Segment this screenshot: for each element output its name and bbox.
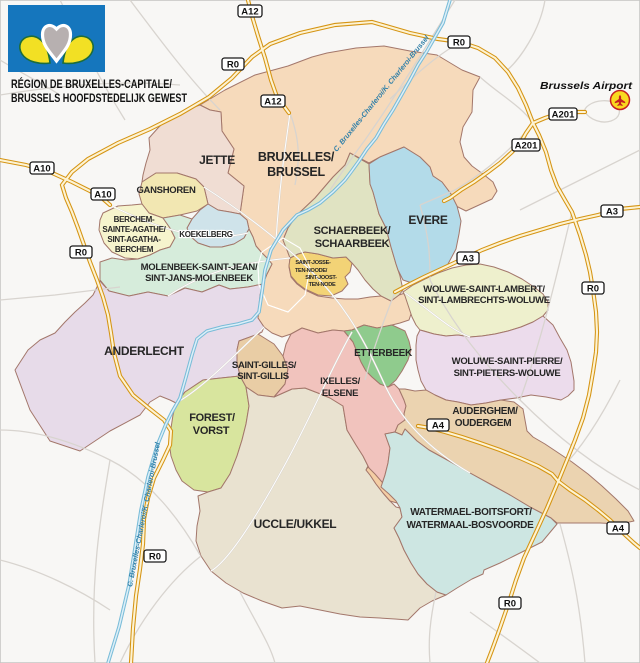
svg-text:SCHAERBEEK/: SCHAERBEEK/ bbox=[314, 225, 391, 237]
svg-text:AUDERGHEM/: AUDERGHEM/ bbox=[452, 406, 518, 417]
svg-text:MOLENBEEK-SAINT-JEAN/: MOLENBEEK-SAINT-JEAN/ bbox=[141, 262, 258, 273]
svg-text:ANDERLECHT: ANDERLECHT bbox=[104, 344, 185, 358]
svg-text:WATERMAAL-BOSVOORDE: WATERMAAL-BOSVOORDE bbox=[407, 520, 535, 531]
svg-text:SINT-PIETERS-WOLUWE: SINT-PIETERS-WOLUWE bbox=[454, 368, 561, 379]
svg-text:R0: R0 bbox=[149, 552, 161, 563]
svg-text:R0: R0 bbox=[453, 38, 465, 49]
svg-text:A201: A201 bbox=[515, 141, 538, 152]
svg-text:ETTERBEEK: ETTERBEEK bbox=[354, 348, 413, 359]
svg-text:A12: A12 bbox=[241, 7, 258, 18]
svg-text:SAINT-JOSSE-: SAINT-JOSSE- bbox=[295, 260, 331, 266]
svg-text:WATERMAEL-BOITSFORT/: WATERMAEL-BOITSFORT/ bbox=[410, 507, 532, 518]
svg-text:A10: A10 bbox=[33, 164, 50, 175]
svg-text:IXELLES/: IXELLES/ bbox=[320, 376, 360, 387]
svg-text:SAINTE-AGATHE/: SAINTE-AGATHE/ bbox=[102, 225, 166, 234]
svg-text:BRUXELLES/: BRUXELLES/ bbox=[258, 150, 335, 164]
svg-text:BRUSSELS HOOFDSTEDELIJK GEWEST: BRUSSELS HOOFDSTEDELIJK GEWEST bbox=[11, 93, 187, 105]
svg-text:TEN-NODE: TEN-NODE bbox=[309, 282, 336, 288]
svg-text:TEN-NOODE/: TEN-NOODE/ bbox=[295, 268, 328, 274]
svg-text:A201: A201 bbox=[552, 110, 575, 121]
svg-text:WOLUWE-SAINT-PIERRE/: WOLUWE-SAINT-PIERRE/ bbox=[452, 356, 563, 367]
svg-text:UCCLE/UKKEL: UCCLE/UKKEL bbox=[254, 517, 337, 531]
svg-text:FOREST/: FOREST/ bbox=[189, 412, 235, 424]
svg-text:VORST: VORST bbox=[193, 425, 230, 437]
svg-text:SINT-LAMBRECHTS-WOLUWE: SINT-LAMBRECHTS-WOLUWE bbox=[418, 295, 550, 306]
svg-text:JETTE: JETTE bbox=[199, 153, 235, 167]
svg-text:R0: R0 bbox=[587, 284, 599, 295]
svg-text:RÉGION DE BRUXELLES-CAPITALE/: RÉGION DE BRUXELLES-CAPITALE/ bbox=[11, 78, 173, 91]
svg-text:SINT-AGATHA-: SINT-AGATHA- bbox=[107, 235, 161, 244]
svg-text:BERCHEM: BERCHEM bbox=[115, 245, 154, 254]
svg-text:R0: R0 bbox=[227, 60, 239, 71]
svg-text:ELSENE: ELSENE bbox=[322, 388, 358, 399]
svg-text:KOEKELBERG: KOEKELBERG bbox=[179, 230, 233, 239]
svg-text:EVERE: EVERE bbox=[408, 213, 447, 227]
svg-text:SINT-JANS-MOLENBEEK: SINT-JANS-MOLENBEEK bbox=[145, 273, 253, 284]
svg-text:BERCHEM-: BERCHEM- bbox=[114, 215, 155, 224]
svg-text:GANSHOREN: GANSHOREN bbox=[136, 185, 195, 196]
svg-text:A4: A4 bbox=[612, 524, 625, 535]
svg-text:SINT-JOOST-: SINT-JOOST- bbox=[305, 275, 337, 281]
svg-text:SCHAARBEEK: SCHAARBEEK bbox=[315, 238, 390, 250]
svg-text:R0: R0 bbox=[504, 599, 516, 610]
svg-text:A10: A10 bbox=[94, 190, 111, 201]
svg-text:SINT-GILLIS: SINT-GILLIS bbox=[237, 371, 289, 382]
svg-text:A12: A12 bbox=[264, 97, 281, 108]
svg-text:SAINT-GILLES/: SAINT-GILLES/ bbox=[232, 360, 297, 371]
svg-text:A3: A3 bbox=[606, 207, 618, 218]
svg-text:A4: A4 bbox=[432, 421, 445, 432]
svg-text:BRUSSEL: BRUSSEL bbox=[267, 165, 325, 179]
svg-text:A3: A3 bbox=[462, 254, 474, 265]
svg-text:OUDERGEM: OUDERGEM bbox=[455, 418, 512, 429]
svg-text:WOLUWE-SAINT-LAMBERT/: WOLUWE-SAINT-LAMBERT/ bbox=[423, 284, 545, 295]
svg-text:R0: R0 bbox=[75, 248, 87, 259]
